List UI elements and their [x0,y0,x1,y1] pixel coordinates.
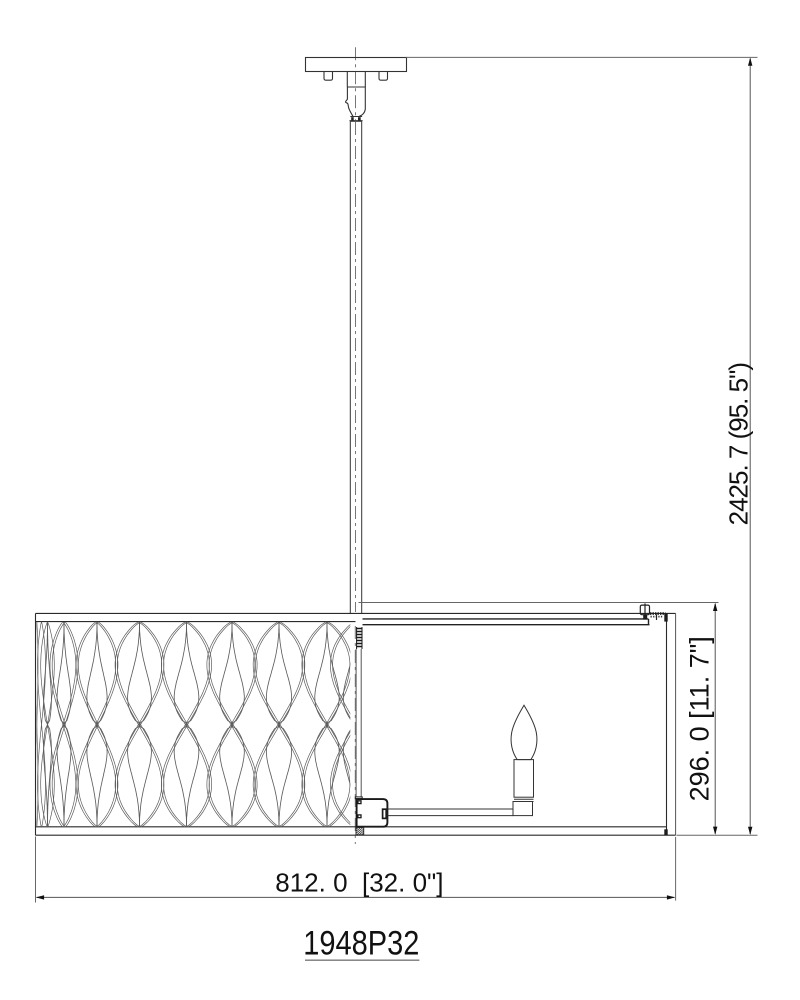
svg-text:812. 0 [32. 0"]: 812. 0 [32. 0"] [275,867,443,897]
svg-text:2425. 7 (95. 5"): 2425. 7 (95. 5") [723,363,753,526]
svg-text:1948P32: 1948P32 [303,923,419,962]
svg-text:296. 0 [11. 7"]: 296. 0 [11. 7"] [685,636,715,801]
